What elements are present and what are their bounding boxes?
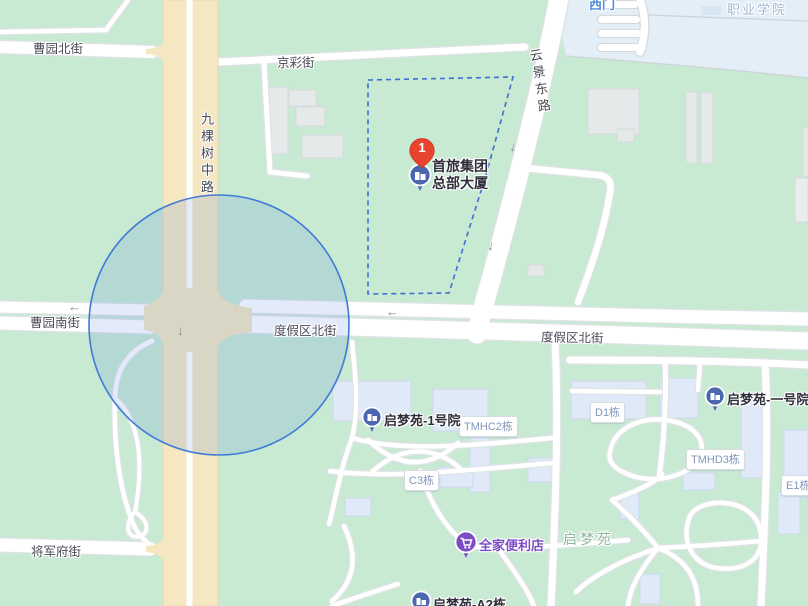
building-badge-tmhd3[interactable]: TMHD3栋 bbox=[686, 449, 745, 470]
street-label-dujiaqu-north-east: 度假区北街 bbox=[541, 326, 604, 346]
arrow-left-icon: ← bbox=[386, 305, 399, 318]
building-badge-e1[interactable]: E1栋 bbox=[781, 475, 808, 496]
map-canvas[interactable] bbox=[0, 0, 808, 606]
area-label-qimengyuan[interactable]: 启梦苑 bbox=[563, 529, 614, 549]
area-label-vocational-college[interactable]: 职业学院 bbox=[727, 0, 787, 18]
poi-label-qimengyuan-a2[interactable]: 启梦苑-A2栋 bbox=[433, 594, 506, 606]
area-label-west-gate[interactable]: 西门 bbox=[589, 0, 615, 13]
poi-label-qimengyuan-1[interactable]: 启梦苑-1号院 bbox=[384, 410, 461, 429]
result-marker-label-line1: 首旅集团 bbox=[432, 158, 488, 175]
arrow-down-icon: ↓ bbox=[177, 324, 184, 337]
building-badge-c3[interactable]: C3栋 bbox=[404, 470, 439, 491]
map-viewport[interactable]: ← ← ↓ ↓ ↓ 曹园北街 京彩街 九棵树中路 云景东路 曹园南街 度假区北街… bbox=[0, 0, 808, 606]
street-label-caoyuan-south: 曹园南街 bbox=[30, 312, 80, 331]
building-badge-tmhc2[interactable]: TMHC2栋 bbox=[459, 416, 518, 437]
building-badge-d1[interactable]: D1栋 bbox=[590, 402, 625, 423]
street-label-jingcai: 京彩街 bbox=[277, 52, 315, 71]
result-marker-label-line2: 总部大厦 bbox=[432, 175, 488, 192]
street-label-dujiaqu-north-west: 度假区北街 bbox=[274, 320, 337, 339]
street-label-jiukeshu-middle-road: 九棵树中路 bbox=[197, 112, 216, 197]
street-label-jiangjunfu: 将军府街 bbox=[31, 541, 81, 560]
street-label-caoyuan-north: 曹园北街 bbox=[33, 38, 83, 57]
poi-label-qimengyuan-yihao[interactable]: 启梦苑-一号院 bbox=[727, 389, 808, 408]
result-marker-label[interactable]: 首旅集团 总部大厦 bbox=[432, 158, 488, 192]
poi-label-familymart[interactable]: 全家便利店 bbox=[479, 535, 544, 554]
result-marker-number: 1 bbox=[408, 140, 436, 155]
